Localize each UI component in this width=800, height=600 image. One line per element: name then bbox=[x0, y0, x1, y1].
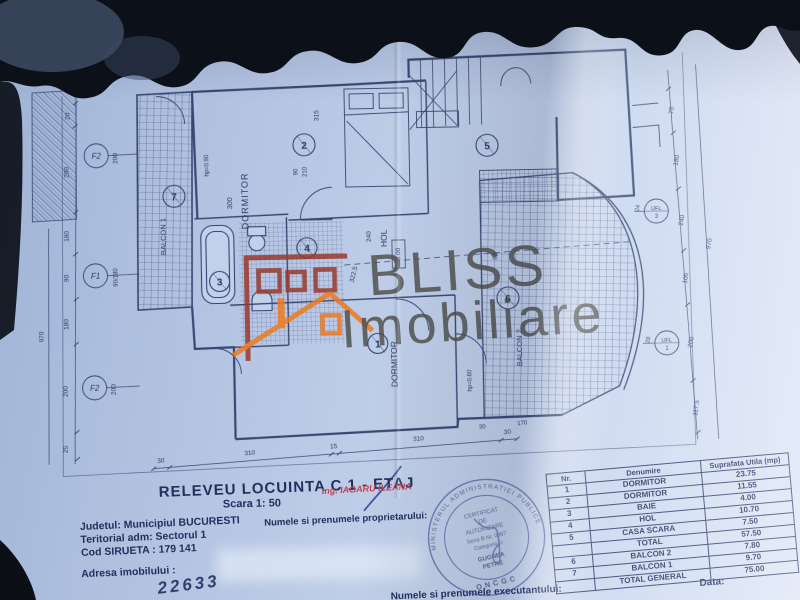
svg-text:30: 30 bbox=[479, 424, 487, 431]
level-mark-ufl1: UFL 1 28 bbox=[645, 335, 672, 352]
svg-text:180: 180 bbox=[673, 154, 682, 166]
window-dim-1: 200 bbox=[112, 153, 119, 164]
svg-text:310: 310 bbox=[413, 435, 425, 443]
document-sheet: DORMITOR 300 DORMITOR HOL +3.00 BALCON 1… bbox=[0, 0, 800, 600]
svg-text:28: 28 bbox=[645, 336, 652, 344]
svg-text:30: 30 bbox=[504, 429, 512, 437]
svg-text:25: 25 bbox=[63, 445, 70, 453]
svg-text:3: 3 bbox=[655, 214, 659, 220]
svg-text:200: 200 bbox=[63, 386, 70, 397]
svg-text:UFL: UFL bbox=[662, 338, 673, 344]
window-dim-3: 200 bbox=[111, 384, 118, 395]
svg-text:75: 75 bbox=[668, 106, 676, 115]
room-number-4: 4 bbox=[304, 244, 310, 255]
svg-text:hp=0.90: hp=0.90 bbox=[204, 154, 210, 177]
svg-text:24: 24 bbox=[635, 204, 642, 212]
svg-text:UFL: UFL bbox=[651, 206, 662, 212]
ministry-round-stamp: MINISTERUL ADMINISTRATIEI PUBLICE CERTIF… bbox=[419, 473, 553, 600]
room-label-dormitor-top: DORMITOR bbox=[240, 172, 251, 229]
svg-text:315: 315 bbox=[313, 110, 320, 121]
logo-chimney bbox=[281, 298, 282, 328]
svg-text:180: 180 bbox=[63, 319, 70, 330]
level-mark-ufl3: UFL 3 24 bbox=[635, 203, 662, 220]
svg-text:970: 970 bbox=[39, 331, 46, 342]
window-mark-1: F2 bbox=[91, 152, 101, 161]
svg-text:30: 30 bbox=[157, 457, 165, 465]
svg-text:105: 105 bbox=[682, 272, 691, 284]
adjacent-hatch bbox=[30, 90, 79, 222]
room-number-3: 3 bbox=[217, 277, 223, 288]
room-number-5: 5 bbox=[484, 141, 490, 152]
svg-text:20: 20 bbox=[64, 112, 71, 120]
svg-text:170: 170 bbox=[517, 420, 528, 427]
area-table: Nr. Denumire Suprafata Utila (mp) 1 DORM… bbox=[545, 452, 799, 594]
svg-text:1: 1 bbox=[665, 346, 669, 352]
svg-text:180: 180 bbox=[64, 231, 71, 242]
svg-text:210: 210 bbox=[302, 166, 308, 177]
area-table-body: 1 DORMITOR 23.75 2 DORMITOR 11.55 3 BAIE… bbox=[547, 465, 799, 594]
svg-text:200: 200 bbox=[687, 336, 696, 348]
svg-text:970: 970 bbox=[705, 238, 714, 250]
photo-of-floor-plan-document: { "photo": { "background_color": "#0b101… bbox=[0, 0, 800, 600]
room-number-7: 7 bbox=[171, 192, 177, 203]
svg-text:hp=0.60: hp=0.60 bbox=[467, 369, 473, 392]
window-mark-2: F1 bbox=[91, 272, 101, 281]
room-label-balcon1: BALCON 1 bbox=[158, 218, 168, 255]
room-number-2: 2 bbox=[301, 141, 307, 152]
svg-text:310: 310 bbox=[244, 449, 256, 457]
svg-text:117.5: 117.5 bbox=[692, 399, 701, 416]
redacted-address-smudge bbox=[217, 546, 423, 582]
svg-text:90: 90 bbox=[63, 274, 70, 282]
svg-text:240: 240 bbox=[366, 231, 373, 242]
svg-text:200: 200 bbox=[63, 167, 70, 178]
svg-text:240: 240 bbox=[678, 214, 687, 226]
svg-text:90: 90 bbox=[293, 168, 299, 175]
balcon1-area bbox=[134, 92, 196, 310]
svg-text:15: 15 bbox=[330, 443, 338, 451]
window-mark-3: F2 bbox=[90, 384, 100, 393]
dim-dorm-width: 300 bbox=[227, 197, 234, 209]
svg-text:322.5: 322.5 bbox=[349, 265, 360, 283]
window-dim-2: 90/180 bbox=[113, 268, 119, 287]
